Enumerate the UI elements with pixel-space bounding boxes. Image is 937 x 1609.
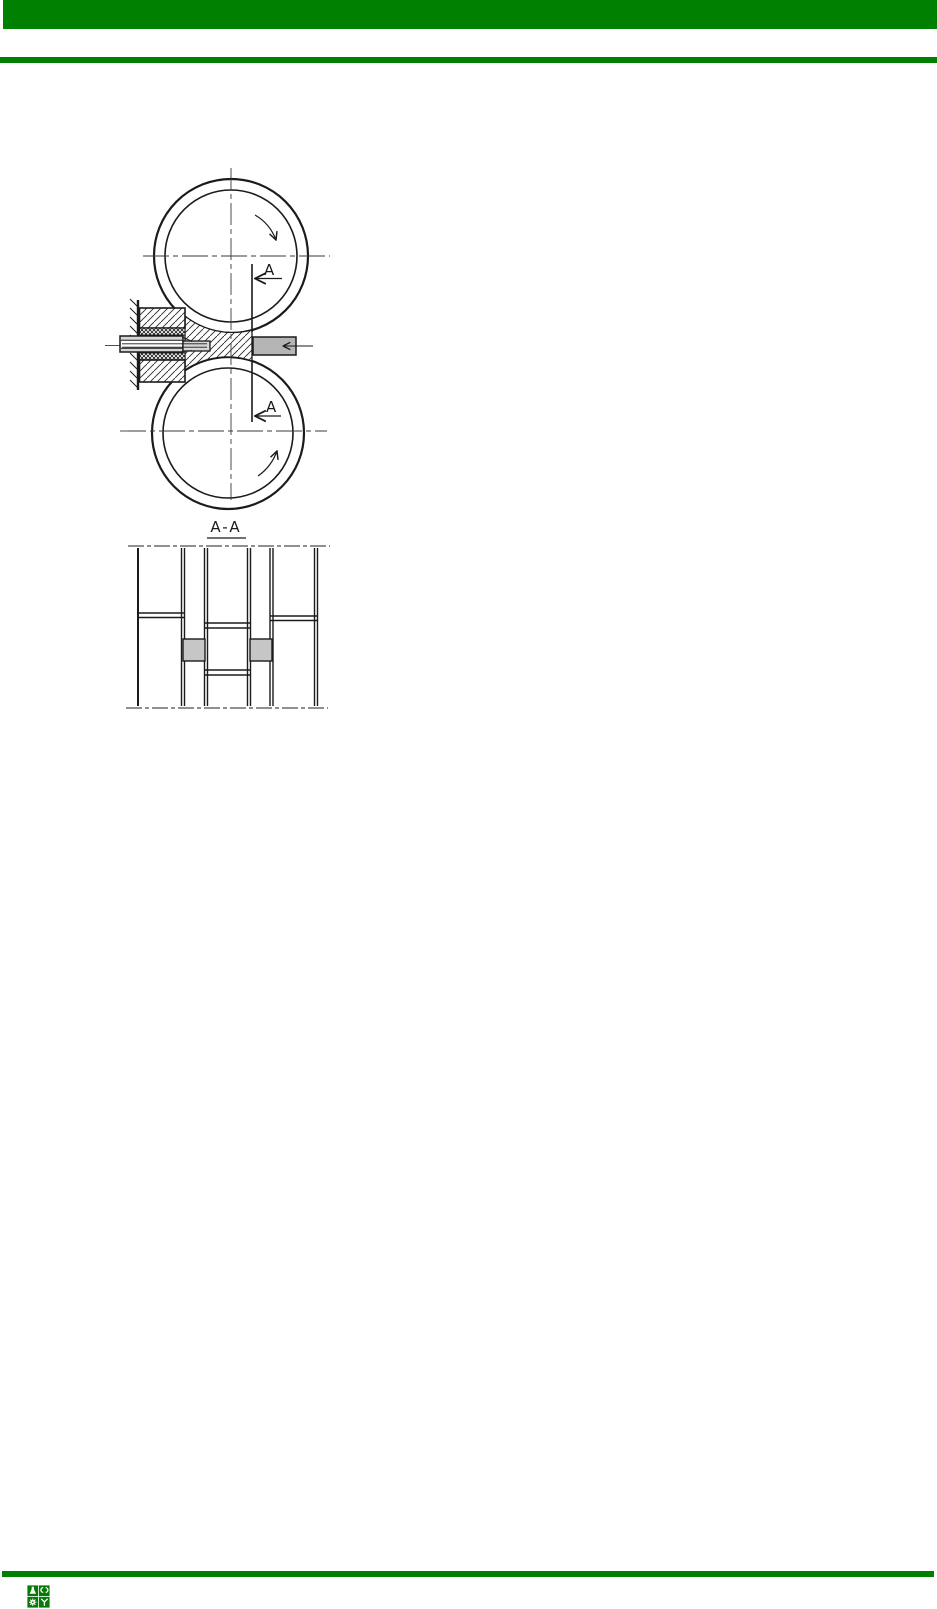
section-marker-top-label: A <box>264 261 275 279</box>
billet <box>253 337 313 355</box>
gear-icon <box>29 1599 36 1606</box>
clamp-strip-lower <box>140 353 186 360</box>
die-block-lower <box>140 360 186 382</box>
rotation-arrow-top <box>255 215 276 240</box>
rolling-mill-figure: A A A-A <box>0 0 937 1609</box>
section-marker-bottom-label: A <box>266 398 277 416</box>
section-square-right <box>250 639 272 661</box>
die-block-upper <box>140 308 186 328</box>
footer-logo <box>27 1585 50 1608</box>
tube-reduced-section <box>183 341 210 351</box>
section-view-title: A-A <box>210 518 241 536</box>
rotation-arrow-bottom <box>258 451 277 476</box>
section-view <box>126 546 330 708</box>
section-square-left <box>183 639 205 661</box>
footer-rule <box>2 1571 934 1577</box>
section-view-title-group: A-A <box>207 518 246 538</box>
clamp-strip-upper <box>140 328 186 335</box>
document-page: A A A-A <box>0 0 937 1609</box>
